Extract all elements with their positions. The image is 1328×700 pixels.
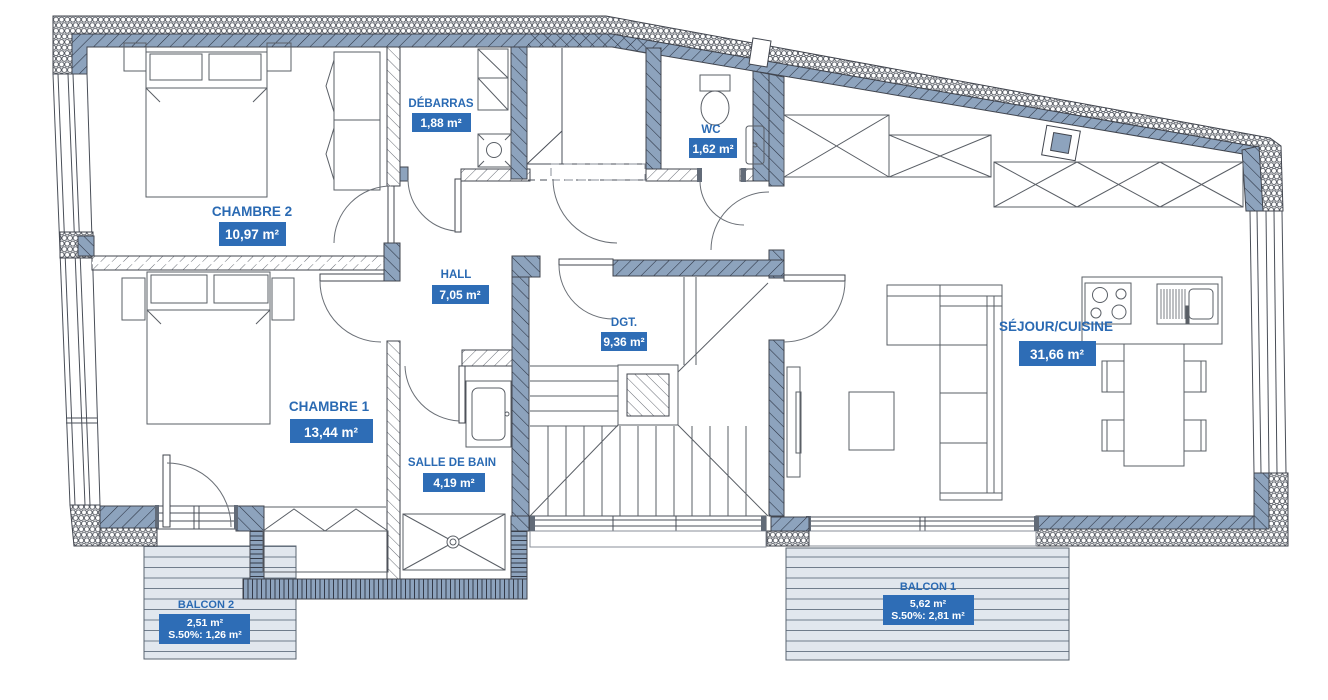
svg-text:13,44 m²: 13,44 m²	[304, 425, 359, 440]
svg-text:1,88 m²: 1,88 m²	[420, 116, 461, 130]
svg-text:2,51 m²: 2,51 m²	[187, 617, 224, 629]
svg-text:5,62 m²: 5,62 m²	[910, 598, 947, 610]
svg-text:7,05 m²: 7,05 m²	[439, 288, 480, 302]
svg-text:CHAMBRE 2: CHAMBRE 2	[212, 204, 292, 219]
svg-text:BALCON 2: BALCON 2	[178, 599, 234, 611]
svg-text:CHAMBRE 1: CHAMBRE 1	[289, 399, 370, 414]
svg-text:DGT.: DGT.	[611, 317, 637, 329]
svg-text:4,19 m²: 4,19 m²	[433, 476, 474, 490]
svg-text:9,36 m²: 9,36 m²	[603, 335, 644, 349]
svg-text:HALL: HALL	[441, 269, 472, 281]
svg-text:10,97 m²: 10,97 m²	[225, 227, 280, 242]
svg-text:31,66 m²: 31,66 m²	[1030, 347, 1085, 362]
svg-text:S.50%: 1,26 m²: S.50%: 1,26 m²	[168, 629, 242, 641]
svg-text:1,62 m²: 1,62 m²	[692, 142, 733, 156]
svg-text:DÉBARRAS: DÉBARRAS	[408, 97, 474, 110]
svg-text:S.50%: 2,81 m²: S.50%: 2,81 m²	[891, 610, 965, 622]
svg-text:SALLE DE BAIN: SALLE DE BAIN	[408, 457, 496, 469]
svg-text:WC: WC	[701, 124, 720, 136]
svg-text:BALCON 1: BALCON 1	[900, 581, 956, 593]
svg-text:SÉJOUR/CUISINE: SÉJOUR/CUISINE	[999, 319, 1113, 334]
